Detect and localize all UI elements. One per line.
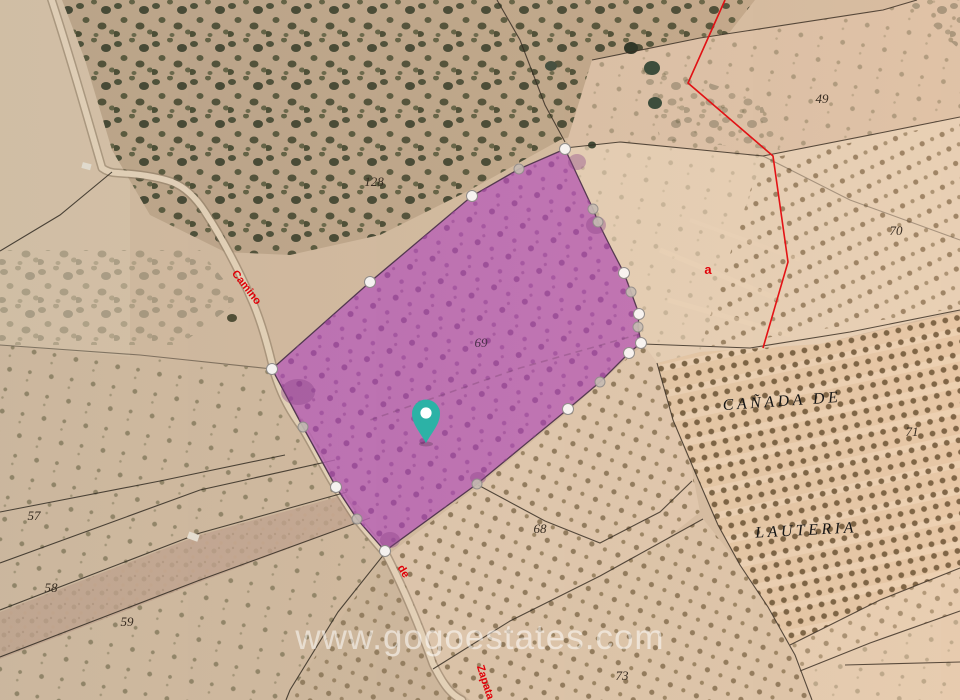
parcel-number-128: 128 bbox=[364, 174, 384, 189]
parcel-number-71: 71 bbox=[906, 424, 919, 439]
watermark-text: www.gogoestates.com bbox=[294, 618, 664, 657]
parcel-number-70: 70 bbox=[890, 223, 904, 238]
parcel-number-58: 58 bbox=[45, 580, 59, 595]
parcel-number-68: 68 bbox=[534, 521, 548, 536]
satellite-map-canvas[interactable]: 128 49 70 71 69 68 57 58 59 73 CAÑADA DE… bbox=[0, 0, 960, 700]
map-viewport[interactable]: 128 49 70 71 69 68 57 58 59 73 CAÑADA DE… bbox=[0, 0, 960, 700]
subparcel-letter-a: a bbox=[704, 262, 712, 277]
parcel-number-57: 57 bbox=[28, 508, 42, 523]
parcel-number-59: 59 bbox=[121, 614, 135, 629]
parcel-number-49: 49 bbox=[816, 91, 830, 106]
parcel-number-73: 73 bbox=[616, 668, 630, 683]
parcel-number-69: 69 bbox=[475, 335, 489, 350]
